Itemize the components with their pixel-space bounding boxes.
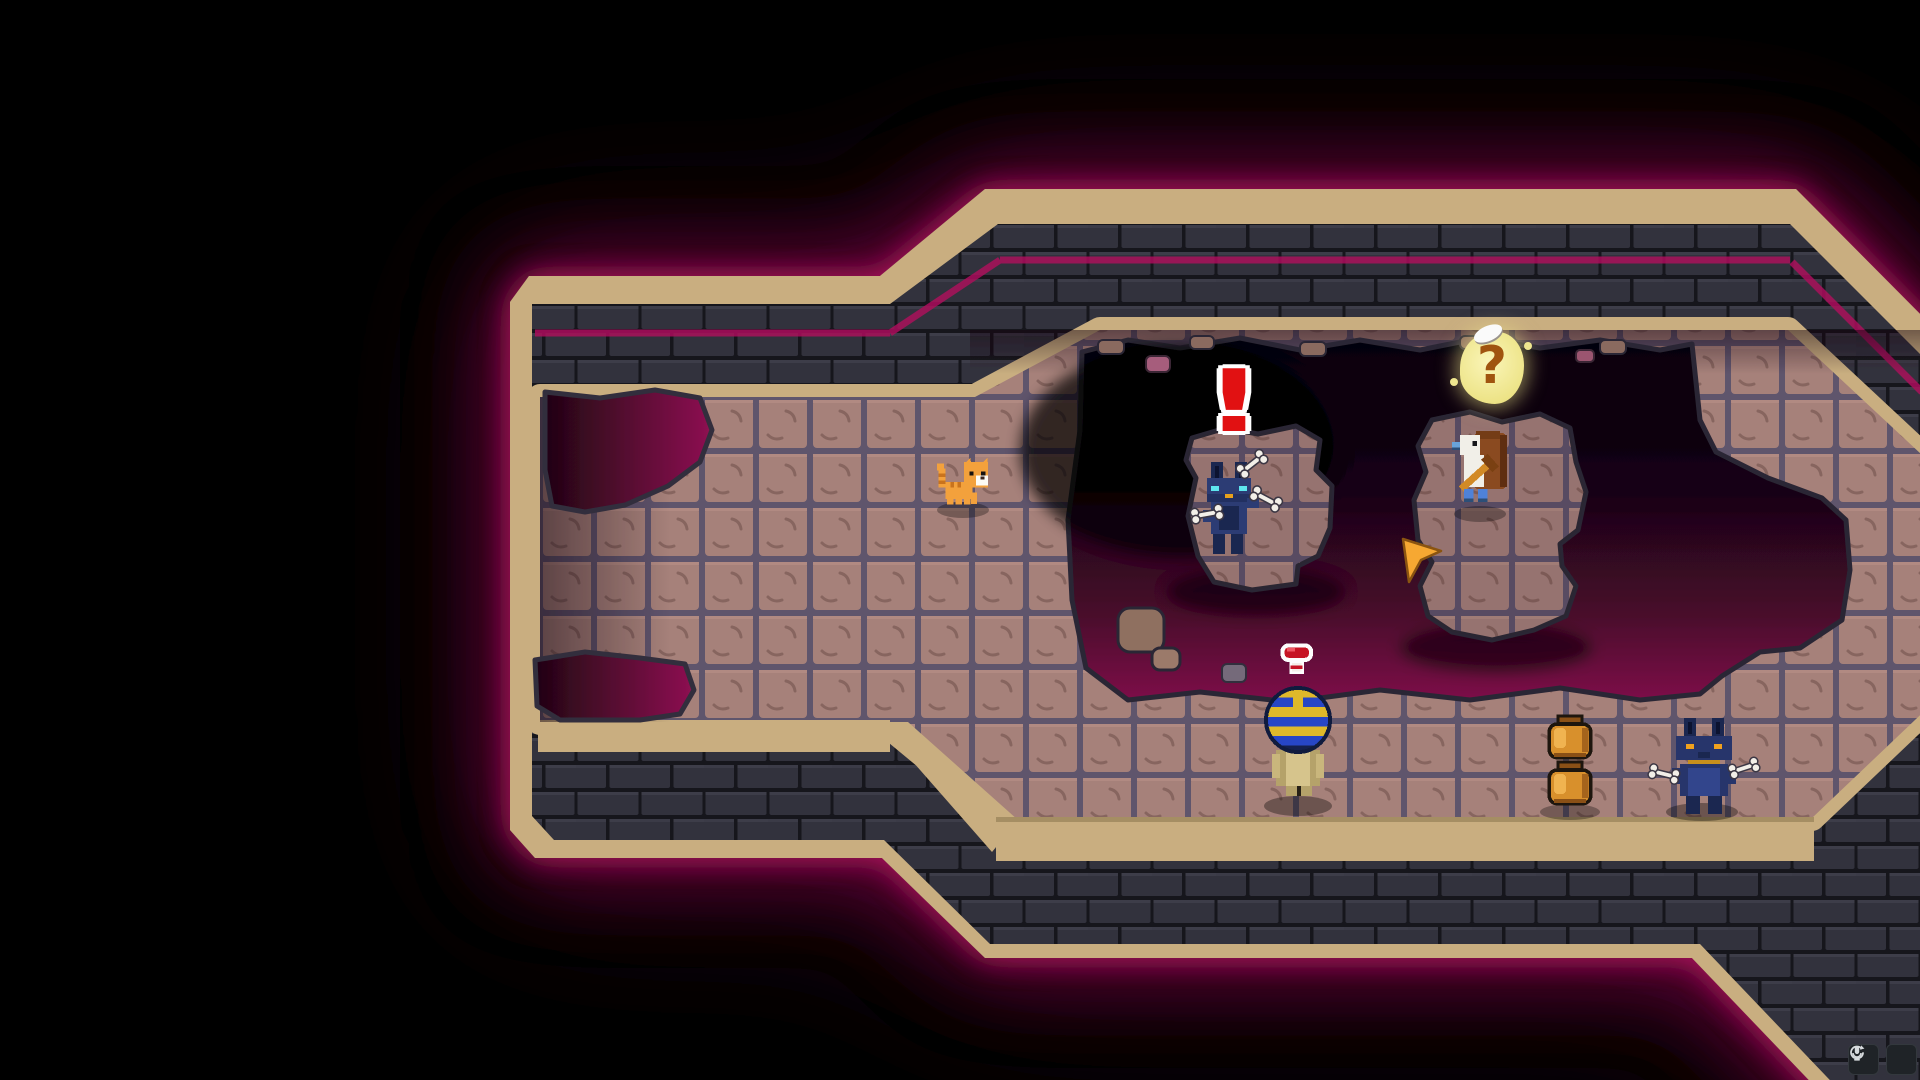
sync-icon — [1848, 1044, 1866, 1062]
duck-shadow — [1454, 506, 1506, 522]
pink-debris — [1576, 350, 1594, 362]
sync-button[interactable] — [1886, 1044, 1917, 1075]
question-glyph: ? — [1460, 336, 1524, 396]
bubble-sparkle — [1450, 378, 1458, 386]
pots-shadow — [1540, 804, 1600, 820]
dungeon-room-canvas — [0, 0, 1920, 1080]
hud-toolbar — [1848, 1044, 1917, 1075]
black-hole — [1108, 378, 1160, 436]
pink-debris — [1146, 356, 1170, 372]
question-bubble: ? — [1460, 332, 1524, 404]
pit-rock — [1118, 608, 1164, 652]
corridor-ledge — [538, 720, 890, 752]
cat-shadow — [937, 502, 989, 518]
pit-rock — [1152, 648, 1180, 670]
jackal-shadow — [1666, 803, 1738, 821]
dungeon-room — [510, 189, 1920, 1080]
mummy-shadow — [1264, 796, 1332, 816]
bubble-sparkle — [1524, 342, 1532, 350]
exclamation-glyph: ! — [1205, 352, 1264, 452]
gray-debris — [1222, 664, 1246, 682]
exclamation-indicator: ! — [1194, 356, 1275, 452]
bottom-ledge — [996, 817, 1814, 861]
void-patch-lower — [535, 652, 694, 720]
game-scene: ! ? — [0, 0, 1920, 1080]
